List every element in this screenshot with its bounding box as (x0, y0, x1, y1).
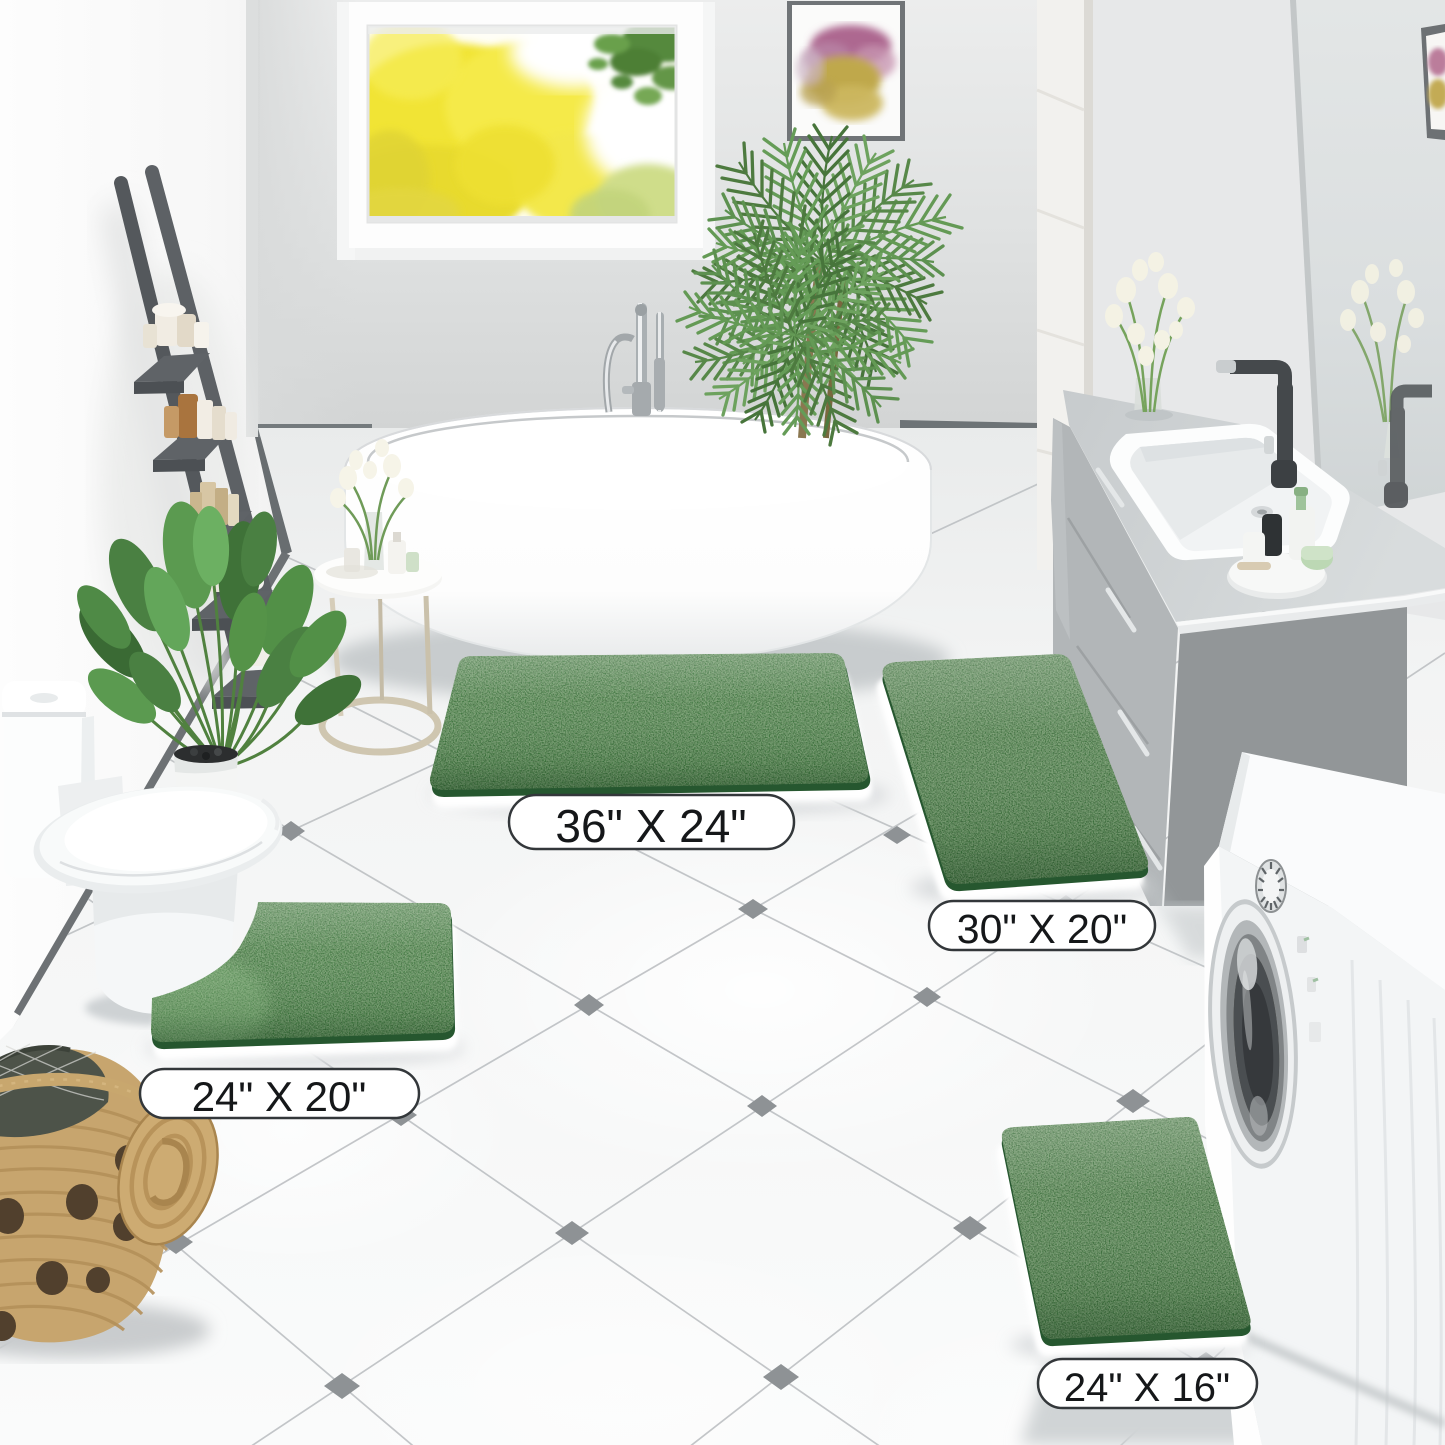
svg-text:24" X 20": 24" X 20" (192, 1073, 367, 1120)
svg-text:36" X 24": 36" X 24" (555, 800, 746, 852)
svg-text:24" X 16": 24" X 16" (1064, 1366, 1230, 1410)
svg-text:30" X 20": 30" X 20" (957, 906, 1127, 952)
